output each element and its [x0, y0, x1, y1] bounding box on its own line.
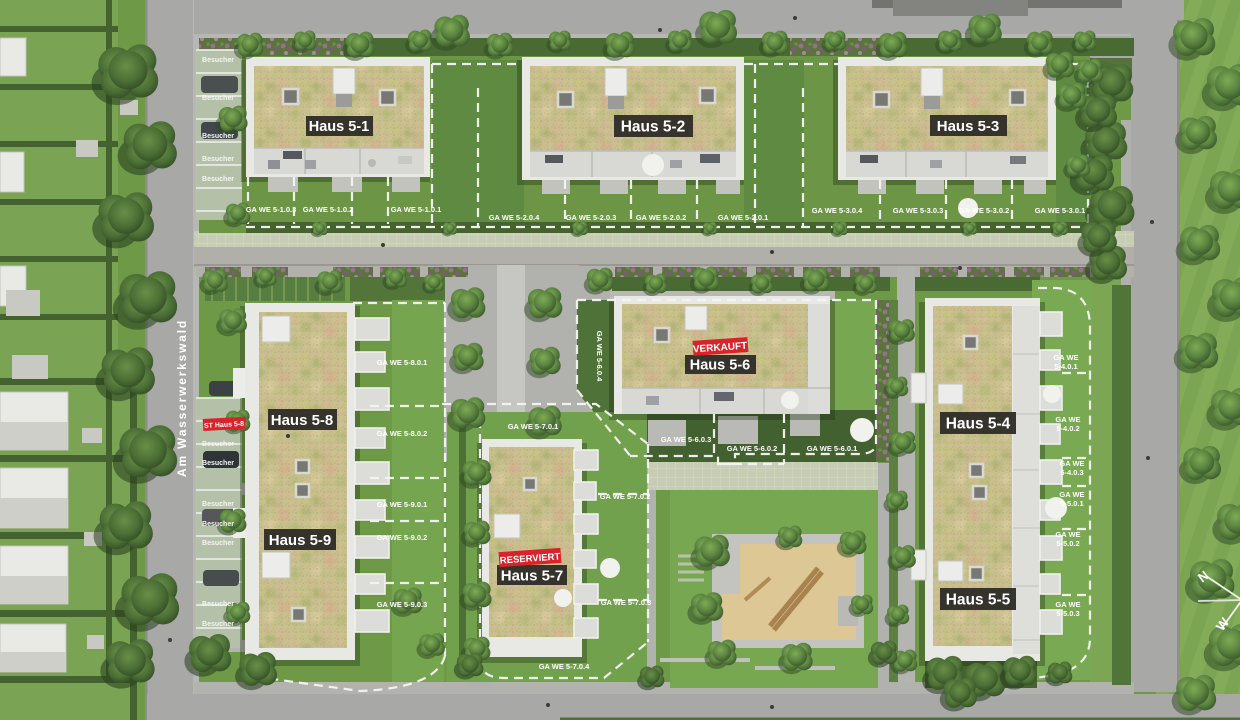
svg-text:GA WE 5-7.0.2: GA WE 5-7.0.2	[600, 492, 651, 501]
svg-text:Besucher: Besucher	[202, 176, 234, 183]
svg-text:GA WE 5-6.0.2: GA WE 5-6.0.2	[727, 444, 778, 453]
svg-text:GA WE 5-7.0.3: GA WE 5-7.0.3	[601, 598, 652, 607]
svg-text:5-5.0.2: 5-5.0.2	[1056, 539, 1079, 548]
svg-text:GA WE 5-9.0.2: GA WE 5-9.0.2	[377, 533, 428, 542]
svg-text:GA WE: GA WE	[1055, 415, 1080, 424]
svg-text:GA WE: GA WE	[1055, 530, 1080, 539]
svg-text:GA WE 5-3.0.1: GA WE 5-3.0.1	[1035, 206, 1086, 215]
svg-text:Besucher: Besucher	[202, 601, 234, 608]
svg-text:Haus 5-8: Haus 5-8	[271, 412, 334, 429]
svg-text:Haus 5-3: Haus 5-3	[937, 118, 1000, 135]
svg-text:Besucher: Besucher	[202, 133, 234, 140]
svg-text:GA WE: GA WE	[1053, 353, 1078, 362]
svg-text:GA WE 5-9.0.1: GA WE 5-9.0.1	[377, 500, 428, 509]
svg-text:Besucher: Besucher	[202, 621, 234, 628]
svg-text:Besucher: Besucher	[202, 521, 234, 528]
svg-text:Haus 5-9: Haus 5-9	[269, 532, 332, 549]
svg-text:GA WE 5-2.0.2: GA WE 5-2.0.2	[636, 213, 687, 222]
svg-text:Haus 5-4: Haus 5-4	[946, 416, 1011, 433]
svg-text:GA WE: GA WE	[1059, 459, 1084, 468]
svg-text:5-4.0.2: 5-4.0.2	[1056, 424, 1079, 433]
svg-text:5-4.0.3: 5-4.0.3	[1060, 468, 1083, 477]
svg-text:Besucher: Besucher	[202, 156, 234, 163]
svg-text:5-5.0.3: 5-5.0.3	[1056, 609, 1079, 618]
svg-text:5-5.0.1: 5-5.0.1	[1060, 499, 1083, 508]
svg-text:GA WE 5-8.0.2: GA WE 5-8.0.2	[377, 429, 428, 438]
svg-text:5-4.0.1: 5-4.0.1	[1054, 362, 1077, 371]
svg-text:Haus 5-5: Haus 5-5	[946, 592, 1011, 609]
svg-text:GA WE 5-9.0.3: GA WE 5-9.0.3	[377, 600, 428, 609]
svg-text:Besucher: Besucher	[202, 540, 234, 547]
svg-text:GA WE 5-7.0.1: GA WE 5-7.0.1	[508, 422, 559, 431]
svg-text:Am Wasserwerkswald: Am Wasserwerkswald	[175, 319, 189, 477]
svg-text:GA WE 5-7.0.4: GA WE 5-7.0.4	[539, 662, 590, 671]
svg-text:GA WE: GA WE	[1055, 600, 1080, 609]
svg-text:GA WE 5-2.0.3: GA WE 5-2.0.3	[566, 213, 617, 222]
svg-text:GA WE 5-6.0.4: GA WE 5-6.0.4	[595, 331, 604, 382]
svg-text:GA WE 5-6.0.1: GA WE 5-6.0.1	[807, 444, 858, 453]
svg-text:GA WE 5-6.0.3: GA WE 5-6.0.3	[661, 435, 712, 444]
svg-text:Besucher: Besucher	[202, 501, 234, 508]
svg-text:GA WE: GA WE	[1059, 490, 1084, 499]
svg-text:Haus 5-1: Haus 5-1	[309, 119, 369, 135]
svg-text:Besucher: Besucher	[202, 460, 234, 467]
svg-text:Haus 5-2: Haus 5-2	[621, 119, 686, 136]
svg-text:Besucher: Besucher	[202, 57, 234, 64]
svg-text:Haus 5-6: Haus 5-6	[690, 358, 750, 374]
svg-text:GA WE 5-3.0.2: GA WE 5-3.0.2	[959, 206, 1010, 215]
svg-text:Haus 5-7: Haus 5-7	[501, 568, 564, 585]
svg-text:GA WE 5-2.0.1: GA WE 5-2.0.1	[718, 213, 769, 222]
svg-text:GA WE 5-1.0.3: GA WE 5-1.0.3	[246, 205, 297, 214]
svg-text:GA WE 5-2.0.4: GA WE 5-2.0.4	[489, 213, 540, 222]
svg-text:GA WE 5-1.0.2: GA WE 5-1.0.2	[303, 205, 354, 214]
svg-text:Besucher: Besucher	[202, 441, 234, 448]
svg-text:GA WE 5-8.0.1: GA WE 5-8.0.1	[377, 358, 428, 367]
svg-text:GA WE 5-1.0.1: GA WE 5-1.0.1	[391, 205, 442, 214]
svg-text:GA WE 5-3.0.4: GA WE 5-3.0.4	[812, 206, 863, 215]
svg-text:GA WE 5-3.0.3: GA WE 5-3.0.3	[893, 206, 944, 215]
svg-text:Besucher: Besucher	[202, 95, 234, 102]
